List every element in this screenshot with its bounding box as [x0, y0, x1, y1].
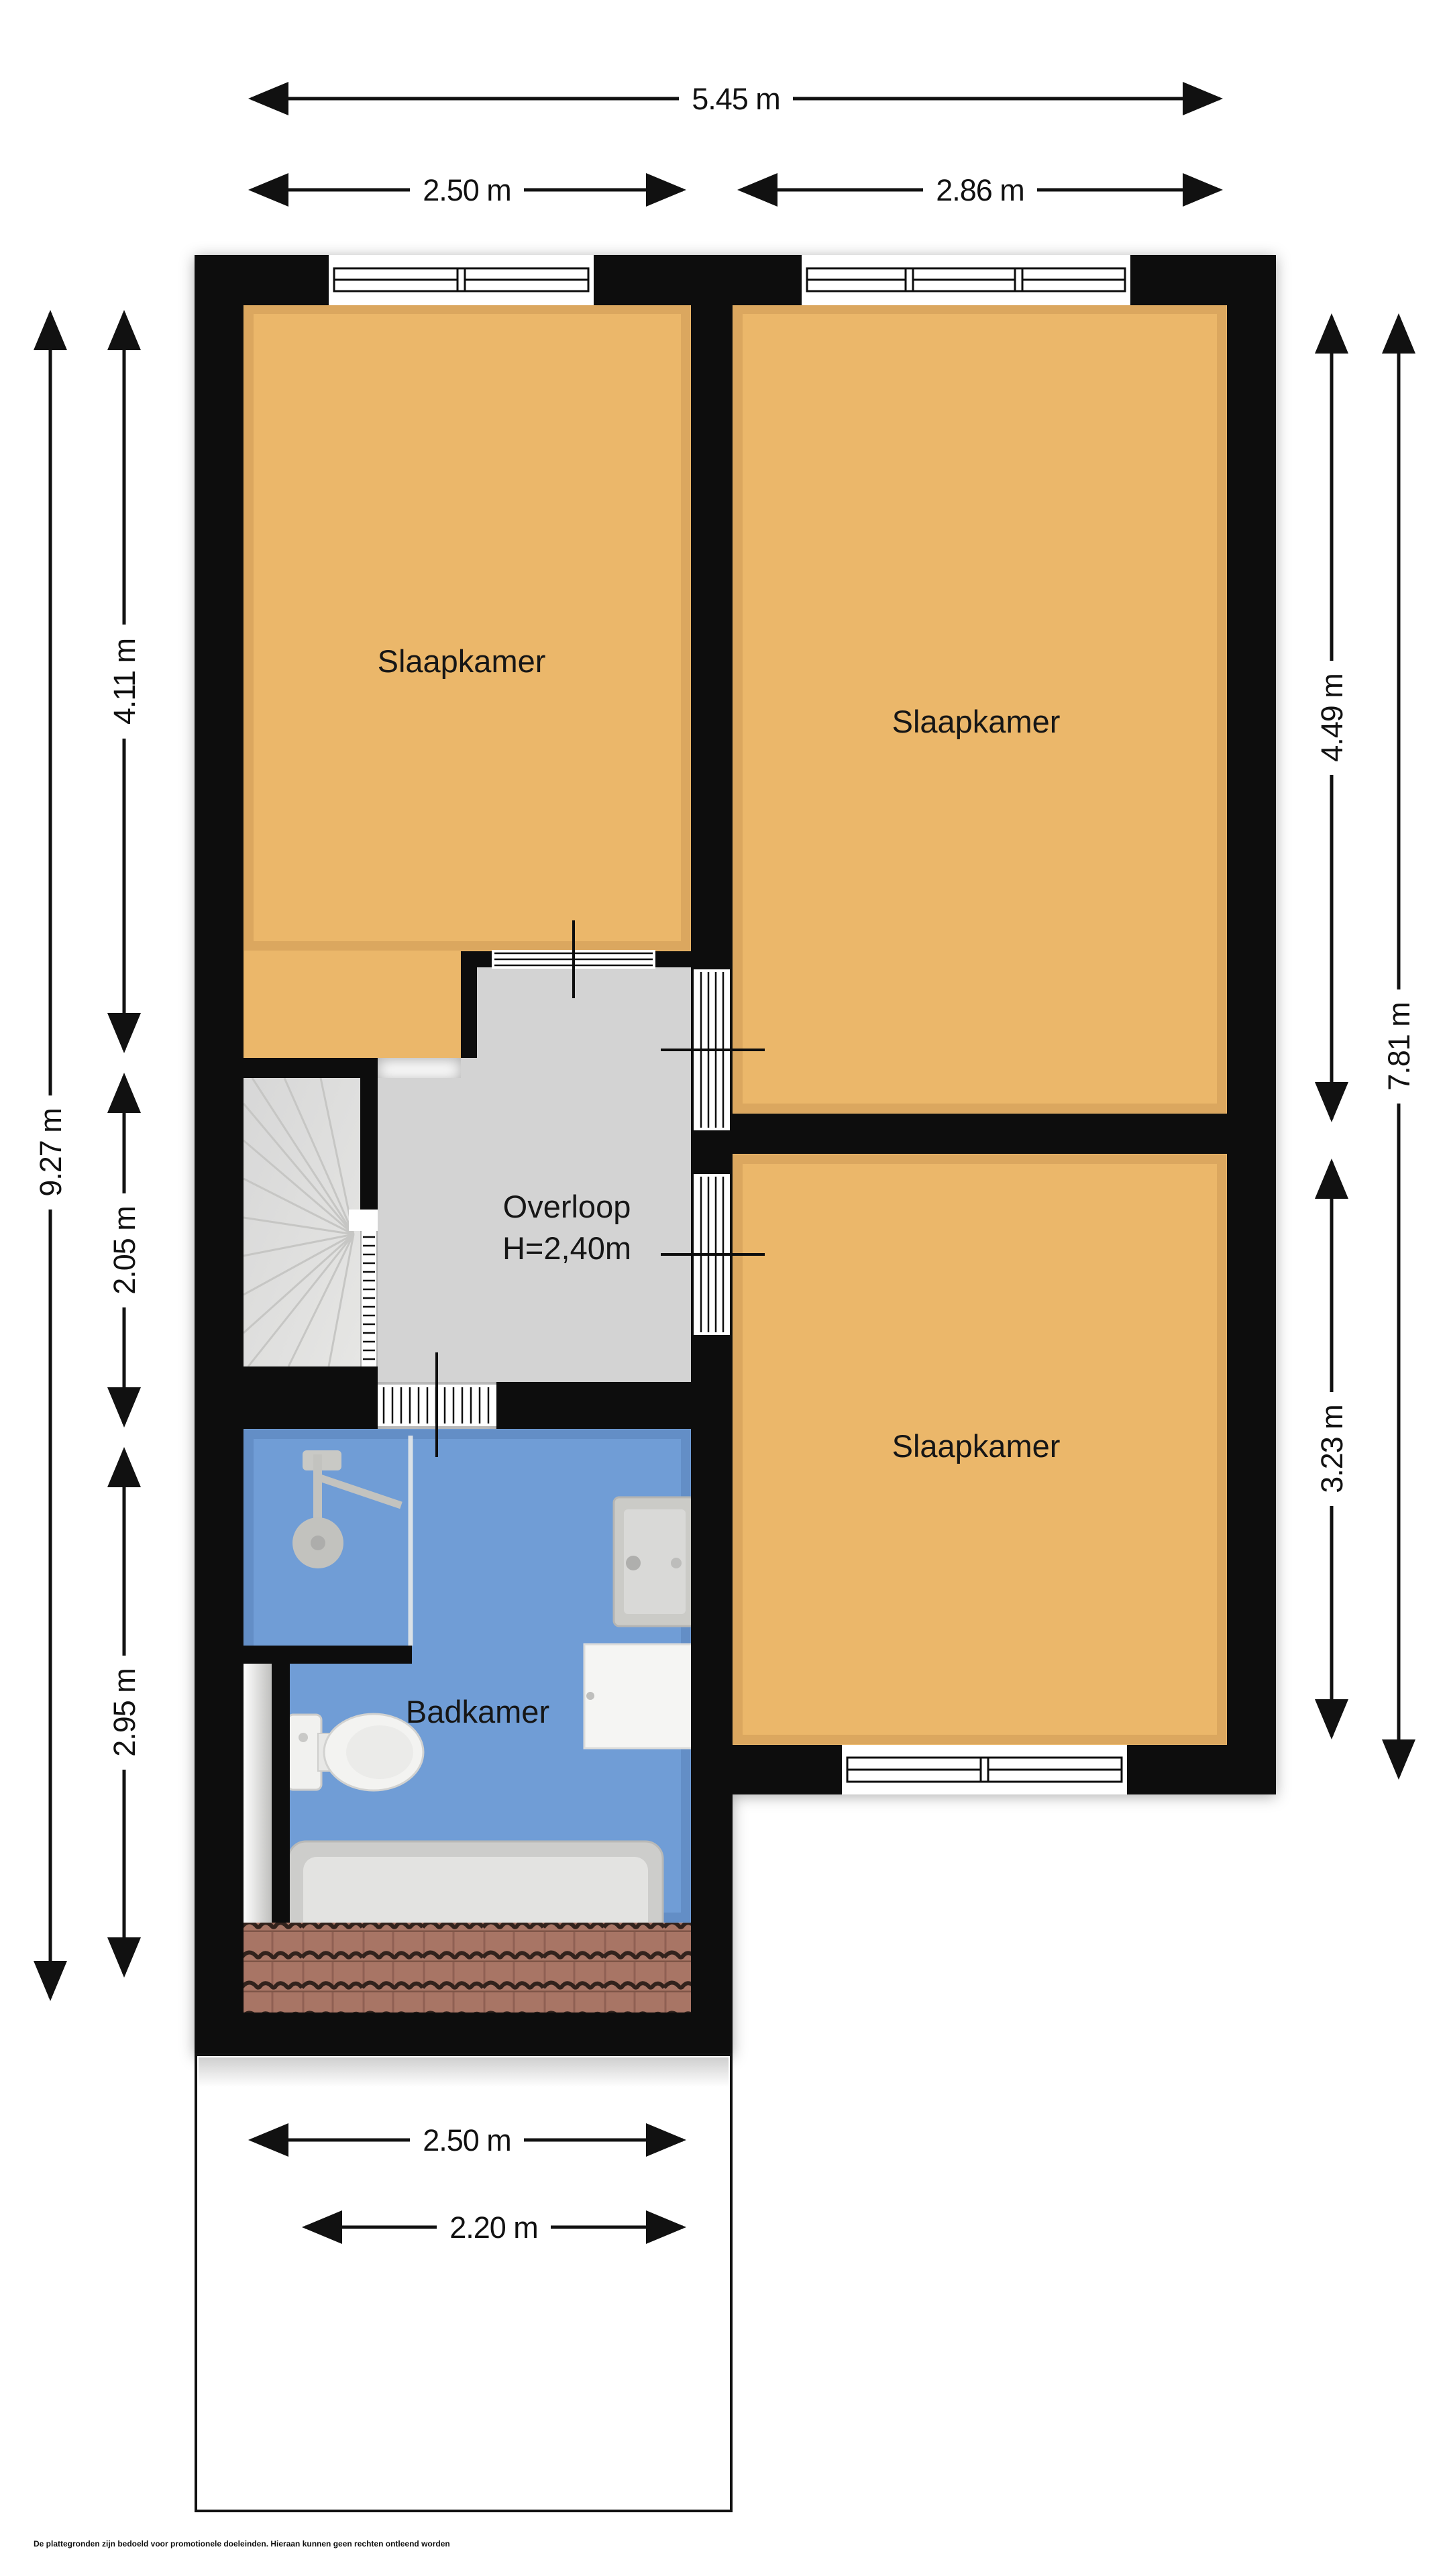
svg-text:9.27 m: 9.27 m [34, 1108, 68, 1197]
room-label-bathroom: Badkamer [406, 1694, 549, 1729]
room-label-landing: Overloop [503, 1189, 631, 1224]
svg-text:2.95 m: 2.95 m [107, 1668, 142, 1757]
dim-left-total: 9.27 m [32, 313, 69, 1998]
svg-text:5.45 m: 5.45 m [692, 82, 780, 116]
svg-text:2.50 m: 2.50 m [423, 2123, 511, 2157]
dim-right-top: 4.49 m [1313, 317, 1350, 1119]
wall-stairs-right [360, 1078, 378, 1212]
window-icon [842, 1745, 1127, 1794]
wall-bathroom-top-left [195, 1366, 378, 1429]
room-bedroom-tl-floor [244, 304, 691, 951]
svg-text:2.05 m: 2.05 m [107, 1206, 142, 1295]
disclaimer-text: De plattegronden zijn bedoeld voor promo… [34, 2539, 450, 2548]
svg-text:2.50 m: 2.50 m [423, 173, 511, 207]
sink-icon [614, 1497, 695, 1626]
wall-bathroom-bottom [195, 2012, 733, 2055]
svg-text:7.81 m: 7.81 m [1382, 1002, 1416, 1091]
svg-text:4.49 m: 4.49 m [1315, 674, 1349, 762]
wall-stairs-top [195, 1058, 378, 1078]
dim-top-total: 5.45 m [252, 80, 1220, 117]
wall-landing-step [461, 951, 477, 1058]
room-bedroom-tl-floor-lobe [244, 951, 461, 1058]
wall-bathroom-top-right [496, 1382, 691, 1429]
dim-top-left: 2.50 m [252, 171, 683, 209]
window-icon [802, 255, 1130, 305]
room-landing-floor-2 [378, 1078, 461, 1382]
wall-left [195, 255, 244, 2055]
stairs-icon [244, 1078, 360, 1366]
wall-toilet-nook [272, 1664, 290, 1923]
room-landing-floor [461, 967, 691, 1382]
svg-text:2.86 m: 2.86 m [936, 173, 1024, 207]
wall-shower-divider [244, 1646, 412, 1664]
dim-left-middle: 2.05 m [105, 1076, 143, 1424]
door-leaf [244, 1664, 272, 1923]
cabinet-icon [584, 1644, 695, 1748]
dim-right-bottom: 3.23 m [1313, 1162, 1350, 1736]
room-label-bedroom-tl: Slaapkamer [378, 643, 546, 679]
wall-between-right-bedrooms [691, 1114, 1276, 1154]
svg-text:4.11 m: 4.11 m [107, 639, 142, 724]
toilet-icon [288, 1714, 423, 1790]
building [195, 255, 1276, 2055]
room-label-bedroom-br: Slaapkamer [892, 1428, 1061, 1464]
window-icon [329, 255, 594, 305]
svg-text:3.23 m: 3.23 m [1315, 1405, 1349, 1493]
floorplan-canvas: Slaapkamer Slaapkamer Slaapkamer Overloo… [0, 0, 1449, 2576]
room-label-bedroom-tr: Slaapkamer [892, 704, 1061, 739]
dim-top-right: 2.86 m [741, 171, 1220, 209]
dim-left-top: 4.11 m [105, 313, 143, 1050]
roof-tiles [244, 1923, 728, 2012]
room-label-landing-height: H=2,40m [502, 1230, 631, 1266]
floors [244, 304, 1227, 1923]
wall-right [1227, 255, 1276, 1794]
dim-right-total: 7.81 m [1380, 317, 1417, 1776]
dim-left-bottom: 2.95 m [105, 1450, 143, 1974]
svg-text:2.20 m: 2.20 m [449, 2210, 538, 2245]
